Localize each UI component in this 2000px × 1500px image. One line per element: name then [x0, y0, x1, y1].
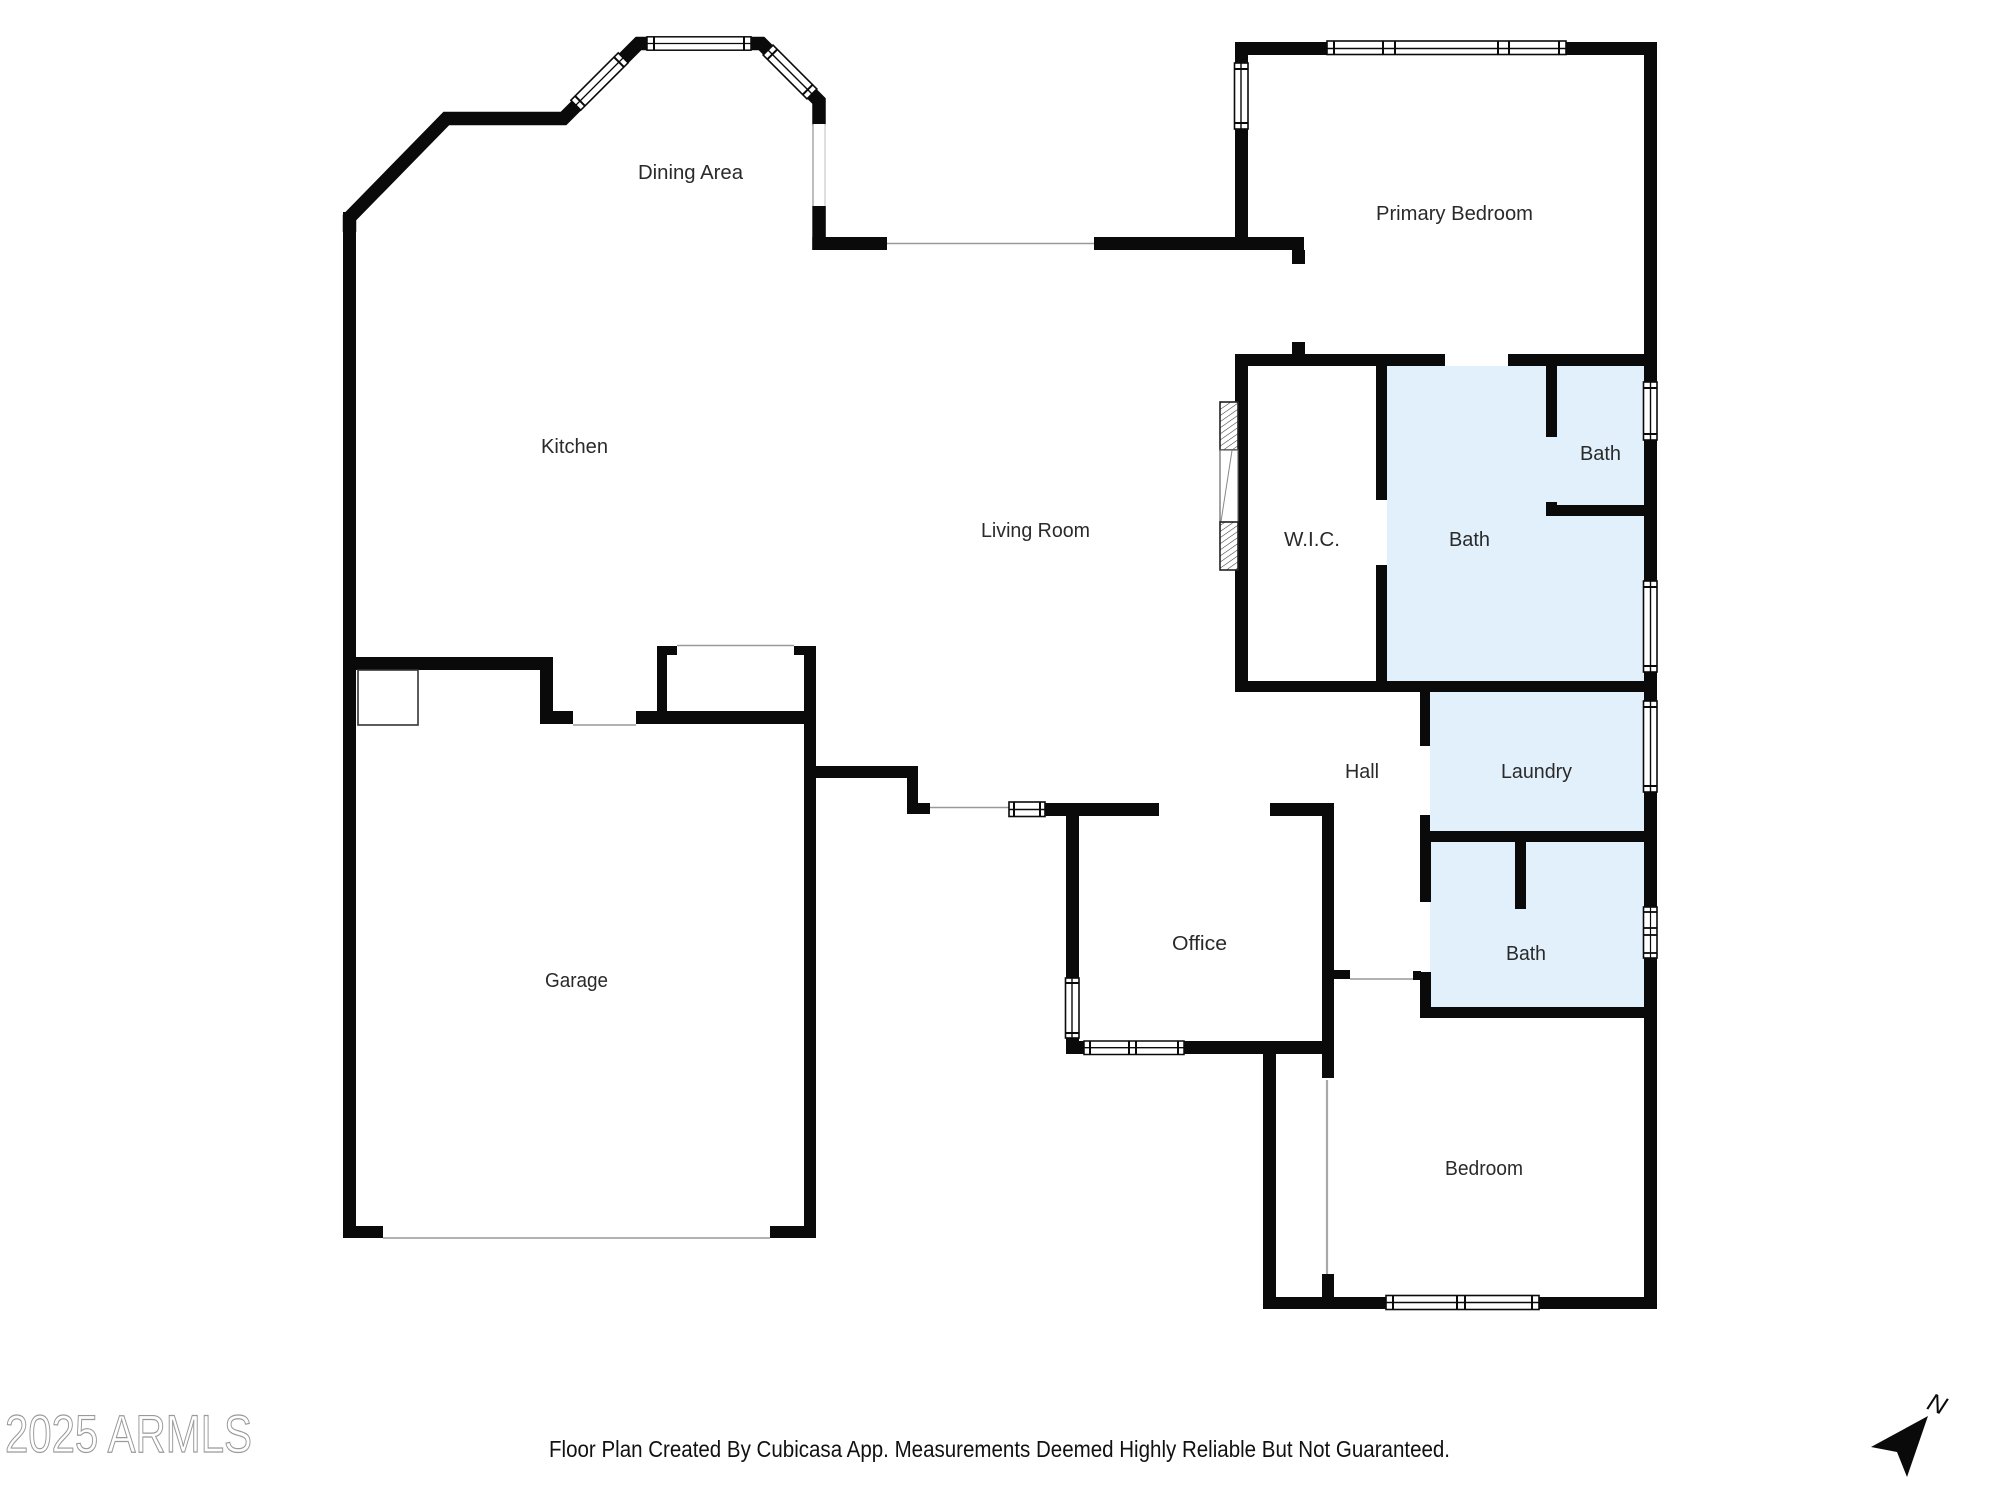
svg-text:2025 ARMLS: 2025 ARMLS: [5, 1405, 252, 1464]
svg-text:Bedroom: Bedroom: [1445, 1158, 1523, 1180]
svg-text:Dining Area: Dining Area: [638, 162, 744, 184]
svg-text:Living Room: Living Room: [981, 520, 1090, 542]
svg-text:Bath: Bath: [1580, 443, 1621, 465]
svg-text:Kitchen: Kitchen: [541, 436, 608, 458]
svg-text:Hall: Hall: [1345, 761, 1379, 783]
svg-text:Bath: Bath: [1449, 529, 1490, 551]
svg-text:Bath: Bath: [1506, 943, 1546, 965]
svg-text:W.I.C.: W.I.C.: [1284, 529, 1340, 551]
svg-text:Garage: Garage: [545, 970, 608, 992]
svg-text:Floor Plan Created By Cubicasa: Floor Plan Created By Cubicasa App. Meas…: [549, 1436, 1450, 1462]
svg-text:Laundry: Laundry: [1501, 761, 1572, 783]
svg-text:Primary Bedroom: Primary Bedroom: [1376, 203, 1533, 225]
svg-text:Office: Office: [1172, 933, 1227, 955]
